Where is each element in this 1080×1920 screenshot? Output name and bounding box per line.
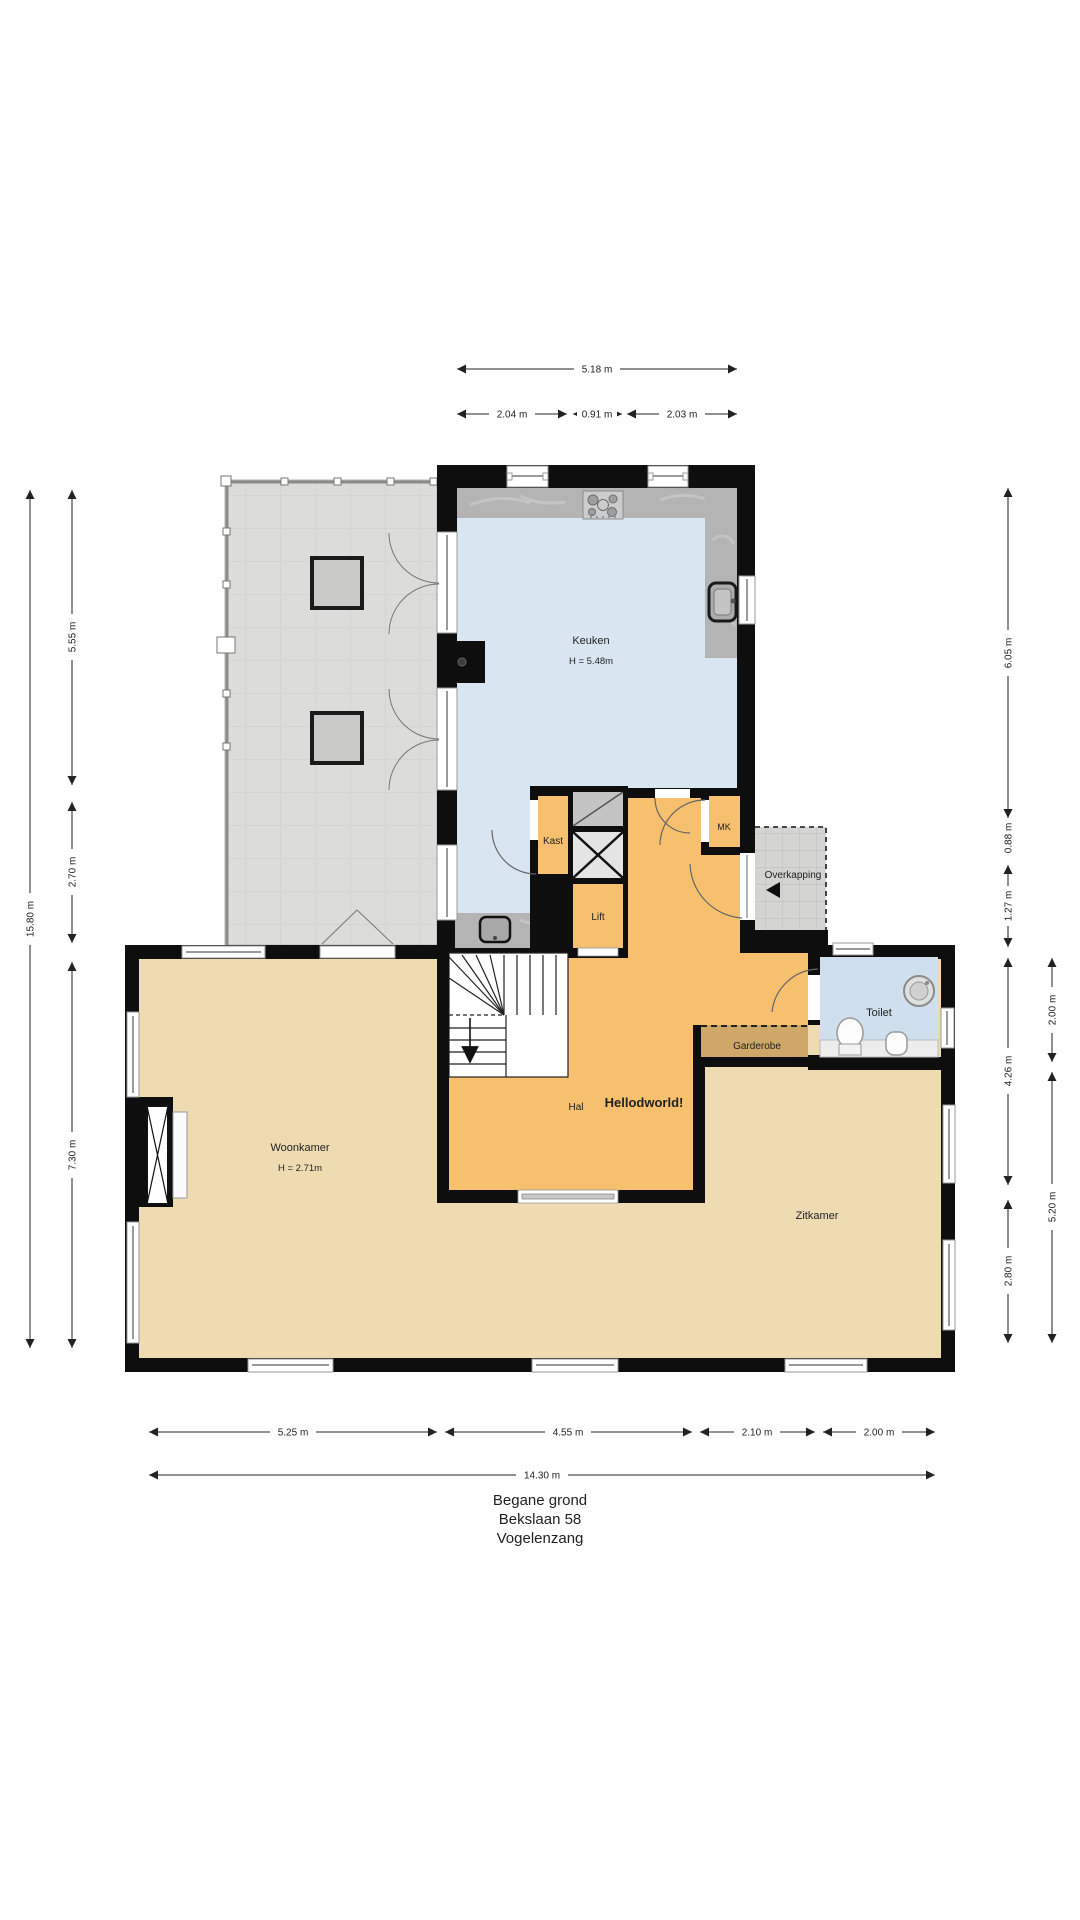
overkapping-south-wall <box>742 930 828 945</box>
dim-right-outer-2: 5.20 m <box>1048 1192 1059 1223</box>
terrace <box>217 476 437 945</box>
window <box>785 1359 867 1372</box>
dim-right-5: 2.80 m <box>1004 1256 1015 1287</box>
room-label-lift: Lift <box>591 912 605 923</box>
kitchen-pier-dot <box>458 658 466 666</box>
staircase <box>449 953 568 1077</box>
dim-left-2: 2.70 m <box>68 857 79 888</box>
plan-title-street: Bekslaan 58 <box>499 1511 582 1528</box>
toilet-bowl-icon <box>837 1018 863 1055</box>
plan-title-floor: Begane grond <box>493 1492 587 1509</box>
window <box>739 576 755 624</box>
dim-right-3: 1.27 m <box>1004 891 1015 922</box>
dim-bottom-2: 4.55 m <box>553 1428 584 1439</box>
dim-top-1: 2.04 m <box>497 410 528 421</box>
dim-top-2: 0.91 m <box>582 410 613 421</box>
fireplace <box>127 1097 187 1207</box>
window <box>833 943 873 955</box>
window <box>648 466 688 487</box>
room-label-zitkamer: Zitkamer <box>796 1210 839 1222</box>
dim-right-4: 4.26 m <box>1004 1056 1015 1087</box>
dim-left-3: 7.30 m <box>68 1140 79 1171</box>
room-label-keuken: Keuken <box>572 635 609 647</box>
stove-icon <box>583 491 623 519</box>
dim-right-1: 6.05 m <box>1004 638 1015 669</box>
room-height-keuken: H = 5.48m <box>569 656 613 667</box>
window <box>941 1008 954 1048</box>
window <box>507 466 548 487</box>
kast-door-gap <box>530 800 538 840</box>
lift-door <box>578 948 618 956</box>
room-label-hal: Hal <box>568 1102 583 1113</box>
toilet-door-gap <box>808 975 820 1020</box>
room-kast-floor <box>538 796 568 874</box>
terrace-gate <box>217 637 235 653</box>
terrace-column-2 <box>312 713 362 763</box>
window <box>127 1222 139 1343</box>
dim-left-1: 5.55 m <box>68 622 79 653</box>
dim-left-total: 15.80 m <box>26 901 37 937</box>
terrace-column-1 <box>312 558 362 608</box>
window <box>943 1105 955 1183</box>
dim-top-3: 2.03 m <box>667 410 698 421</box>
room-label-mk: MK <box>717 822 731 832</box>
dim-bottom-total: 14.30 m <box>524 1471 560 1482</box>
window <box>532 1359 618 1372</box>
dim-right-2: 0.88 m <box>1004 823 1015 854</box>
room-label-garderobe: Garderobe <box>733 1041 781 1052</box>
kitchen-sink-icon <box>709 583 736 621</box>
dim-right-outer-1: 2.00 m <box>1048 995 1059 1026</box>
window <box>127 1012 139 1097</box>
dim-top-total: 5.18 m <box>582 365 613 376</box>
window <box>182 946 265 958</box>
room-label-woonkamer: Woonkamer <box>270 1142 329 1154</box>
urinal-icon <box>886 1032 907 1055</box>
room-height-woonkamer: H = 2.71m <box>278 1163 322 1174</box>
plan-title-city: Vogelenzang <box>497 1530 584 1547</box>
floorplan-page: Keuken H = 5.48m Woonkamer H = 2.71m Zit… <box>0 0 1080 1920</box>
dim-bottom-4: 2.00 m <box>864 1428 895 1439</box>
kitchen-counter-right <box>705 488 737 658</box>
room-label-overkapping: Overkapping <box>765 870 822 881</box>
plan-title-block: Begane grond Bekslaan 58 Vogelenzang <box>493 1492 587 1547</box>
window <box>437 845 457 920</box>
dim-bottom-3: 2.10 m <box>742 1428 773 1439</box>
window <box>248 1359 333 1372</box>
window <box>943 1240 955 1330</box>
hello-world-text: Hellodworld! <box>605 1095 684 1110</box>
floorplan-svg: Keuken H = 5.48m Woonkamer H = 2.71m Zit… <box>0 0 1080 1920</box>
kitchen-hall-door-gap <box>655 789 690 798</box>
room-label-toilet: Toilet <box>866 1007 892 1019</box>
hall-sliding-door <box>518 1190 618 1203</box>
room-label-kast: Kast <box>543 836 563 847</box>
dim-bottom-1: 5.25 m <box>278 1428 309 1439</box>
